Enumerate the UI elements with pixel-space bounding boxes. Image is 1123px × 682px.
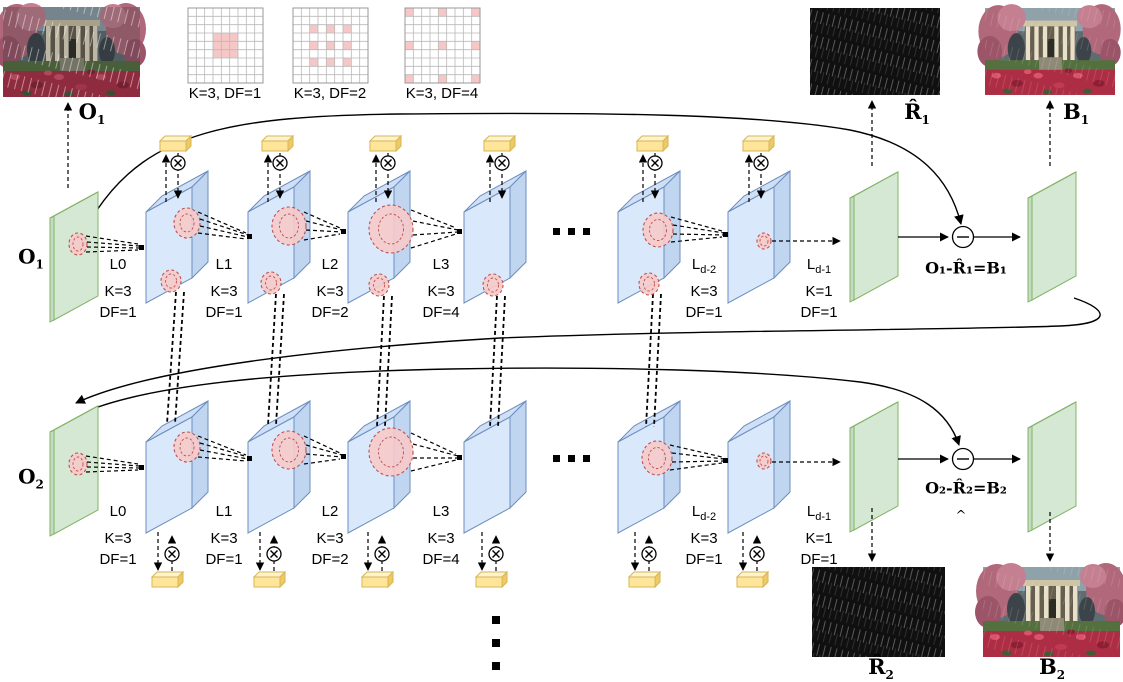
conv-slab-l1-row2 <box>146 401 208 533</box>
skip-curve-o1-to-subtract <box>97 113 961 224</box>
attention-unit-ld1-row2 <box>737 532 768 587</box>
subtract-node-row2 <box>898 449 1020 470</box>
layer-label-l3-row1: L3 K=3DF=4 <box>422 254 459 323</box>
rainy-input-image-o1 <box>0 3 146 97</box>
layer-label-ld2-row1: Ld-2 K=3DF=1 <box>685 254 722 323</box>
layer-label-l1-row1: L1 K=3DF=1 <box>205 254 242 323</box>
clean-output-image-b1 <box>977 4 1120 95</box>
attention-unit-l4-row2 <box>476 532 507 587</box>
clean-output-image-b2 <box>975 563 1123 657</box>
input-plane-row1 <box>50 192 98 322</box>
layer-label-l1-row2: L1 K=3DF=1 <box>205 501 242 570</box>
subtract-node-row1 <box>898 227 1020 248</box>
ellipsis-row1 <box>553 228 590 235</box>
kernel-grid-df4 <box>405 8 480 83</box>
rain-streak-image-r2 <box>812 567 945 657</box>
label-row1-input: O1 <box>18 245 44 272</box>
label-b1-image: B1 <box>1063 99 1089 127</box>
image-connectors <box>68 101 1050 561</box>
layer-label-l2-row2: L2 K=3DF=2 <box>311 501 348 570</box>
layer-label-l0-row1: L0 K=3DF=1 <box>99 254 136 323</box>
skip-curve-o2-to-subtract <box>98 368 959 445</box>
conv-slab-l4-row2 <box>464 401 526 533</box>
label-row2-input: O2 <box>18 465 44 492</box>
kernel-grid-df1 <box>188 8 263 83</box>
label-b2-image: B2 <box>1039 654 1065 682</box>
attention-unit-ld2-row2 <box>629 532 660 587</box>
conv-slab-l2-row2 <box>248 401 310 533</box>
label-r1-image: R̂1 <box>904 99 930 127</box>
rain-estimate-plane-row2 <box>850 402 898 532</box>
caption-kernel-df4: K=3, DF=4 <box>406 85 479 102</box>
stray-caret: ^ <box>956 509 967 524</box>
label-r2-image: R̂2 <box>868 654 894 682</box>
output-plane-row1 <box>1028 172 1076 302</box>
rain-estimate-plane-row1 <box>850 172 898 302</box>
diagram-canvas <box>0 0 1123 682</box>
layer-label-l3-row2: L3 K=3DF=4 <box>422 501 459 570</box>
label-o1-image: O1 <box>79 99 106 127</box>
formula-row2: O₂-R̂₂=B₂ <box>925 479 1007 498</box>
output-plane-row2 <box>1028 402 1076 532</box>
caption-kernel-df2: K=3, DF=2 <box>294 85 367 102</box>
kernel-grid-df2 <box>293 8 368 83</box>
layer-label-ld1-row1: Ld-1 K=1DF=1 <box>800 254 837 323</box>
rain-streak-image-r1 <box>810 8 940 95</box>
attention-unit-l3-row2 <box>362 532 393 587</box>
layer-label-l0-row2: L0 K=3DF=1 <box>99 501 136 570</box>
layer-label-ld2-row2: Ld-2 K=3DF=1 <box>685 501 722 570</box>
layer-label-ld1-row2: Ld-1 K=1DF=1 <box>800 501 837 570</box>
attention-unit-l1-row2 <box>152 532 183 587</box>
caption-kernel-df1: K=3, DF=1 <box>189 85 262 102</box>
attention-unit-l2-row2 <box>254 532 285 587</box>
formula-row1: O₁-R̂₁=B₁ <box>925 259 1007 278</box>
ellipsis-row2 <box>553 455 590 462</box>
derain-network-architecture-diagram: O1 R̂1 B1 R̂2 B2 O1 O2 O₁-R̂₁=B₁ O₂-R̂₂=… <box>0 0 1123 682</box>
ellipsis-vertical <box>492 616 500 670</box>
layer-label-l2-row1: L2 K=3DF=2 <box>311 254 348 323</box>
